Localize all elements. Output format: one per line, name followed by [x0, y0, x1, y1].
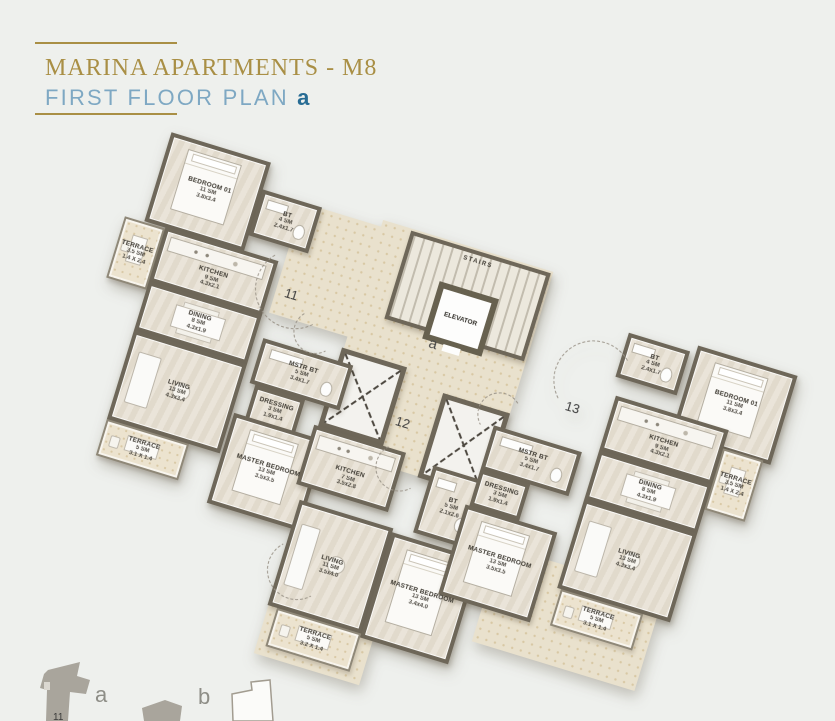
page: MARINA APARTMENTS - M8 FIRST FLOOR PLAN … [0, 0, 835, 721]
room-label: BT4 SM2.4x1.7 [254, 194, 317, 248]
site-key-label-a: a [95, 682, 108, 707]
floor-plan: STAIRSELEVATORBEDROOM 0111 SM3.8x3.4BT4 … [0, 0, 835, 721]
site-key-label-b: b [198, 684, 210, 709]
site-key-building-a-notch [44, 682, 50, 690]
site-key: a b 11 [0, 630, 835, 721]
site-key-unit-number: 11 [53, 712, 64, 721]
site-key-building-a-shape [40, 662, 90, 721]
site-key-building-partial-shape [142, 700, 182, 721]
site-key-building-b-shape [232, 680, 273, 721]
elevator-label: ELEVATOR [430, 289, 492, 350]
